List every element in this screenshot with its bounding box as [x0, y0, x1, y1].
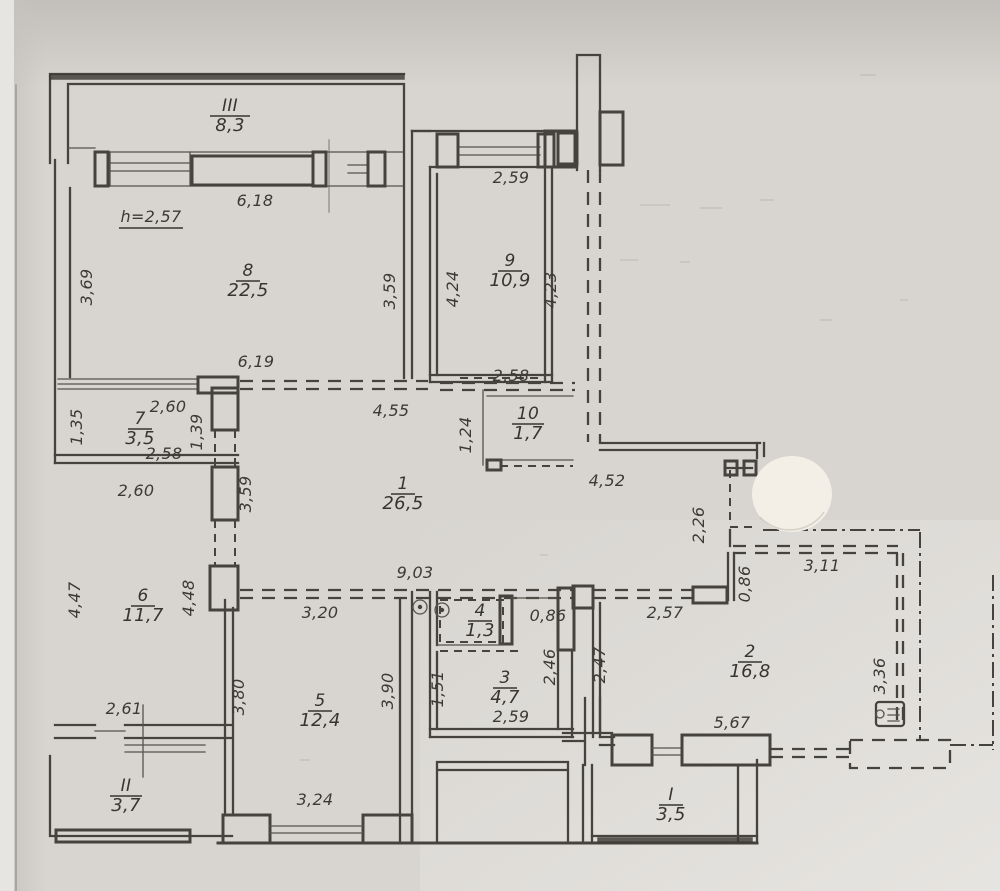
room-number-7: 7	[134, 409, 145, 429]
room-area-10: 1,7	[513, 423, 543, 444]
dimension-label: 3,36	[870, 658, 889, 695]
room-number-III: III	[222, 96, 238, 116]
dimension-label: 1,35	[67, 409, 86, 446]
dimension-label: 3,11	[804, 556, 841, 575]
room-area-II: 3,7	[111, 795, 141, 816]
room-number-I: I	[668, 785, 673, 805]
floor-plan: III8,3822,5910,973,5101,7126,5611,741,33…	[0, 0, 1000, 891]
dimension-label: 4,47	[65, 581, 84, 618]
dimension-label: 6,18	[237, 191, 274, 210]
room-area-III: 8,3	[215, 115, 245, 136]
room-number-9: 9	[504, 251, 515, 271]
room-area-2: 16,8	[729, 661, 770, 682]
dimension-label: 2,26	[689, 507, 708, 544]
room-number-3: 3	[499, 668, 510, 688]
dimension-label: 3,20	[302, 603, 339, 622]
room-area-4: 1,3	[465, 620, 495, 641]
room-area-9: 10,9	[489, 270, 530, 291]
room-number-10: 10	[517, 404, 539, 424]
room-area-1: 26,5	[382, 493, 423, 514]
dimension-label: 3,69	[77, 269, 96, 306]
dimension-label: 0,86	[735, 566, 754, 603]
dimension-label: 2,58	[146, 444, 183, 463]
dimension-label: 3,59	[380, 273, 399, 310]
scanned-floor-plan-page: III8,3822,5910,973,5101,7126,5611,741,33…	[0, 0, 1000, 891]
dimension-label: 2,60	[118, 481, 155, 500]
dimension-label: 3,24	[297, 790, 334, 809]
dimension-label: 4,23	[541, 272, 560, 309]
dimension-label: 2,57	[647, 603, 684, 622]
room-area-I: 3,5	[656, 804, 686, 825]
room-area-5: 12,4	[299, 710, 340, 731]
dimension-label: 4,52	[589, 471, 626, 490]
dimension-label: 1,39	[187, 414, 206, 451]
dimension-label: 3,80	[229, 679, 248, 716]
dimension-label: 1,24	[456, 417, 475, 454]
room-number-5: 5	[314, 691, 325, 711]
dimension-label: 4,48	[179, 580, 198, 617]
room-number-6: 6	[137, 586, 148, 606]
dimension-label: 2,58	[493, 366, 530, 385]
sticker-dot	[752, 456, 832, 532]
dimension-label: 1,51	[428, 671, 447, 708]
dimension-label: 4,24	[443, 271, 462, 308]
dimension-label: 9,03	[397, 563, 434, 582]
dimension-label: 0,86	[530, 606, 567, 625]
dimension-label: 6,19	[238, 352, 275, 371]
dimension-label: 3,59	[236, 476, 255, 513]
dimension-label: 5,67	[714, 713, 751, 732]
dimension-label: 4,55	[373, 401, 410, 420]
room-number-4: 4	[474, 601, 485, 621]
room-number-1: 1	[397, 474, 408, 494]
dimension-label: 2,61	[106, 699, 143, 718]
dimension-label: 2,47	[590, 646, 609, 683]
room-number-8: 8	[242, 261, 253, 281]
room-area-8: 22,5	[227, 280, 268, 301]
dimension-label: 2,59	[493, 707, 530, 726]
room-area-3: 4,7	[490, 687, 520, 708]
room-area-6: 11,7	[122, 605, 164, 626]
dimension-label: 3,90	[378, 673, 397, 710]
dimension-label: 2,46	[540, 649, 559, 686]
dimension-label: 2,59	[493, 168, 530, 187]
room-number-II: II	[121, 776, 132, 796]
room-number-2: 2	[744, 642, 755, 662]
dimension-label: 2,60	[150, 397, 187, 416]
ceiling-height-note: h=2,57	[121, 207, 182, 226]
